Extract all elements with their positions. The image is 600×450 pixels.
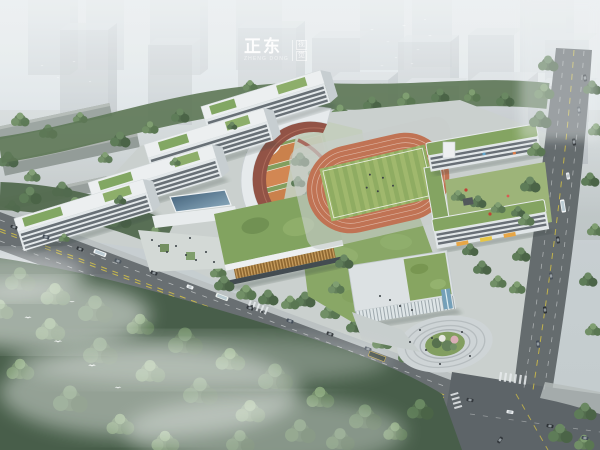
color-grade-overlay	[0, 0, 600, 450]
watermark-main: 正东 ZHENG DONG	[244, 38, 289, 62]
scene-canvas	[0, 0, 600, 450]
watermark-divider	[292, 40, 293, 61]
watermark-side-label: 视 觉	[296, 40, 307, 61]
watermark-subtitle: ZHENG DONG	[244, 56, 289, 62]
campus-aerial-rendering: 正东 ZHENG DONG 视 觉	[0, 0, 600, 450]
watermark-side-top: 视	[296, 40, 307, 50]
watermark-brand: 正东	[244, 38, 289, 55]
watermark: 正东 ZHENG DONG 视 觉	[244, 38, 307, 62]
watermark-side-bottom: 觉	[296, 51, 307, 61]
